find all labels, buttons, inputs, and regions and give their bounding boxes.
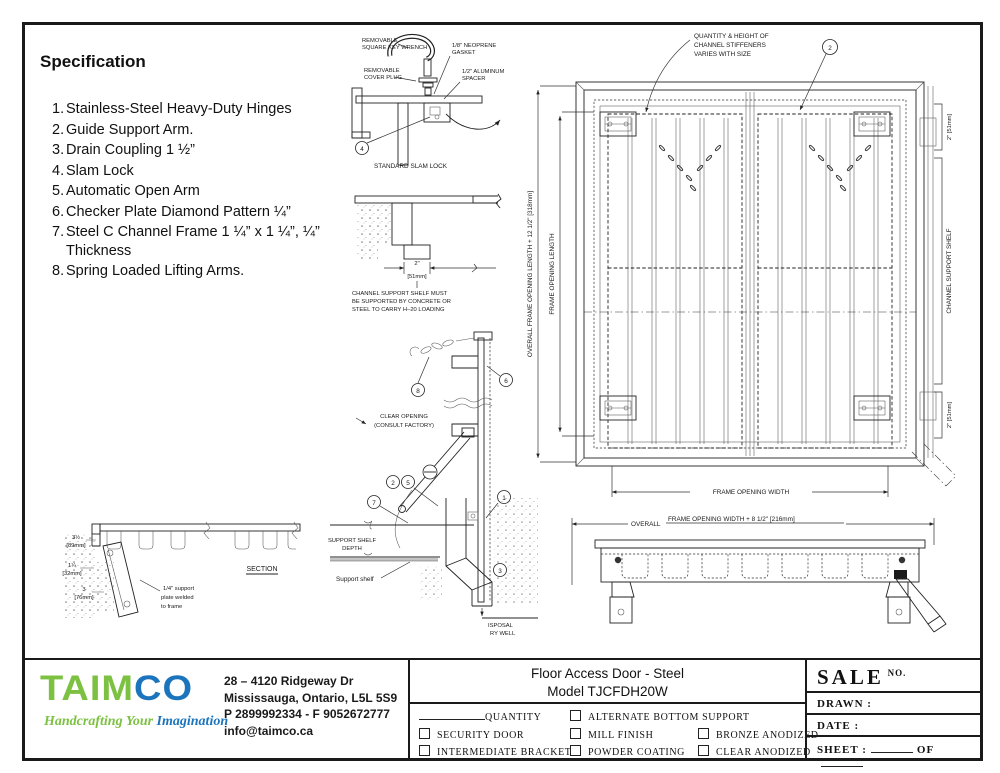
disposal-well-label-1: ISPOSAL — [488, 623, 514, 629]
drawing-area: QUANTITY & HEIGHT OF CHANNEL STIFFENERS … — [0, 0, 1000, 660]
chain — [410, 338, 474, 356]
dim-overall-length: OVERALL FRAME OPENING LENGTH + 12 1/2" [… — [527, 191, 534, 358]
title-block-admin: SALE NO. DRAWN : DATE : SHEET :OF — [805, 660, 980, 759]
callout-5: 5 — [406, 480, 410, 487]
shelf-note-3: STEEL TO CARRY H–20 LOADING — [352, 307, 445, 313]
section-dim-1-in: 3½ — [72, 534, 80, 541]
plan-note-line1: QUANTITY & HEIGHT OF — [694, 33, 769, 40]
option-alternate-bottom-support: ALTERNATE BOTTOM SUPPORT — [570, 710, 750, 723]
sheet-number-blank[interactable] — [871, 742, 913, 753]
company-logo: TAIMCO — [40, 672, 193, 707]
options-area: QUANTITY SECURITY DOOR INTERMEDIATE BRAC… — [410, 702, 805, 761]
plan-view-drawing: QUANTITY & HEIGHT OF CHANNEL STIFFENERS … — [527, 33, 956, 585]
slam-lock-detail: REMOVABLE SQUARE KEY WRENCH REMOVABLE CO… — [352, 36, 504, 170]
label-gasket-1: 1/8" NEOPRENE — [452, 43, 496, 49]
support-shelf-label: Support shelf — [336, 576, 374, 583]
alternate-bottom-support-checkbox[interactable] — [570, 710, 581, 721]
quantity-blank[interactable] — [419, 710, 485, 720]
callout-7: 7 — [372, 500, 376, 507]
sale-no-label: NO. — [888, 668, 907, 678]
quantity-label: QUANTITY — [485, 712, 541, 723]
elevation-view-drawing — [595, 540, 946, 632]
drawing-model: Model TJCFDH20W — [410, 683, 805, 701]
dim-frame-opening-width: FRAME OPENING WIDTH — [713, 489, 790, 496]
option-mill-finish: MILL FINISH — [570, 728, 653, 741]
address-line-2: Mississauga, Ontario, L5L 5S9 — [224, 690, 397, 707]
lifting-arm-detail: 8 6 CLEAR OPENING (CONSULT FACTORY) 2 5 … — [328, 332, 538, 637]
channel-support-shelf-label: CHANNEL SUPPORT SHELF — [946, 228, 953, 313]
dim-overall-width-prefix: OVERALL — [631, 521, 661, 528]
label-gasket-2: GASKET — [452, 50, 476, 56]
option-bronze-anodized: BRONZE ANODIZED — [698, 728, 819, 741]
clear-opening-label-1: CLEAR OPENING — [380, 414, 428, 420]
sheet-total-blank[interactable] — [821, 756, 863, 767]
label-spacer-1: 1/2" ALUMINUM — [462, 69, 504, 75]
clear-opening-label-2: (CONSULT FACTORY) — [374, 423, 434, 429]
dim-2in-top: 2" [51mm] — [947, 114, 953, 141]
address-line-3: P 2899992334 - F 9052672777 — [224, 706, 397, 723]
section-dim-3-mm: [76mm] — [74, 595, 94, 601]
dim-overall-width: FRAME OPENING WIDTH + 8 1/2" [216mm] — [668, 516, 795, 523]
option-powder-coating: POWDER COATING — [570, 745, 685, 758]
label-cover-plug-2: COVER PLUG — [364, 75, 403, 81]
shelf-dim-mm: [51mm] — [407, 274, 427, 280]
callout-8: 8 — [416, 388, 420, 395]
label-spacer-2: SPACER — [462, 76, 485, 82]
plan-note-line3: VARIES WITH SIZE — [694, 51, 751, 58]
option-security-door: SECURITY DOOR — [419, 728, 524, 741]
section-note-3: to frame — [161, 604, 182, 610]
intermediate-bracket-checkbox[interactable] — [419, 745, 430, 756]
title-block: TAIMCO Handcrafting Your Imagination 28 … — [22, 658, 980, 759]
logo-green-text: TAIM — [40, 670, 134, 709]
bronze-anodized-checkbox[interactable] — [698, 728, 709, 739]
disposal-well-label-2: RY WELL — [490, 631, 516, 637]
company-tagline: Handcrafting Your Imagination — [44, 714, 228, 730]
support-shelf-depth-2: DEPTH — [342, 546, 362, 552]
dim-frame-opening-length: FRAME OPENING LENGTH — [549, 233, 556, 315]
shelf-note-2: BE SUPPORTED BY CONCRETE OR — [352, 299, 451, 305]
section-note-2: plate welded — [161, 595, 194, 601]
section-dim-2-in: 1¼ — [68, 563, 76, 569]
plan-note-line2: CHANNEL STIFFENERS — [694, 42, 766, 49]
shelf-dim-inches: 2" — [414, 261, 419, 267]
section-caption: SECTION — [246, 566, 277, 573]
drawing-title: Floor Access Door - Steel — [410, 665, 805, 683]
sale-label: SALE — [817, 665, 884, 689]
label-key-wrench-1: REMOVABLE — [362, 38, 398, 44]
section-note-1: 1/4" support — [163, 586, 194, 592]
section-dim-3-in: 3 — [82, 587, 85, 593]
sale-no-row: SALE NO. — [807, 660, 980, 693]
shelf-support-detail: 2" [51mm] CHANNEL SUPPORT SHELF MUST BE … — [352, 194, 501, 313]
section-view-drawing: 3½ [89mm] 1¼ [32mm] 3 [76mm] 1/4" suppor… — [62, 522, 300, 618]
drain-pipe — [446, 498, 492, 606]
security-door-checkbox[interactable] — [419, 728, 430, 739]
powder-coating-checkbox[interactable] — [570, 745, 581, 756]
callout-4: 4 — [360, 146, 364, 153]
option-intermediate-bracket: INTERMEDIATE BRACKET — [419, 745, 572, 758]
section-dim-1-mm: [89mm] — [66, 543, 86, 549]
checker-plate-marks — [659, 145, 872, 192]
clear-anodized-checkbox[interactable] — [698, 745, 709, 756]
mill-finish-checkbox[interactable] — [570, 728, 581, 739]
slam-lock-caption: STANDARD SLAM LOCK — [374, 163, 448, 170]
label-key-wrench-2: SQUARE KEY WRENCH — [362, 45, 427, 51]
dim-2in-bottom: 2" [51mm] — [947, 402, 953, 429]
address-line-1: 28 – 4120 Ridgeway Dr — [224, 673, 397, 690]
callout-2b: 2 — [391, 480, 395, 487]
date-row: DATE : — [807, 715, 980, 737]
logo-blue-text: CO — [134, 670, 193, 709]
quantity-field: QUANTITY — [419, 710, 541, 723]
company-email: info@taimco.ca — [224, 723, 397, 740]
callout-6: 6 — [504, 378, 508, 385]
company-address: 28 – 4120 Ridgeway Dr Mississauga, Ontar… — [224, 673, 397, 739]
section-dim-2-mm: [32mm] — [62, 571, 82, 577]
drawing-sheet: Specification 1.Stainless-Steel Heavy-Du… — [0, 0, 1000, 773]
drawn-row: DRAWN : — [807, 693, 980, 715]
drain-coupling — [912, 444, 956, 486]
shelf-note-1: CHANNEL SUPPORT SHELF MUST — [352, 291, 448, 297]
option-clear-anodized: CLEAR ANODIZED — [698, 745, 811, 758]
label-cover-plug-1: REMOVABLE — [364, 68, 400, 74]
support-shelf-depth-1: SUPPORT SHELF — [328, 538, 377, 544]
title-block-company: TAIMCO Handcrafting Your Imagination 28 … — [22, 660, 408, 759]
callout-3: 3 — [498, 568, 502, 575]
title-block-drawing-title: Floor Access Door - Steel Model TJCFDH20… — [408, 660, 805, 759]
sheet-row: SHEET :OF — [807, 737, 980, 759]
callout-2: 2 — [828, 45, 832, 52]
